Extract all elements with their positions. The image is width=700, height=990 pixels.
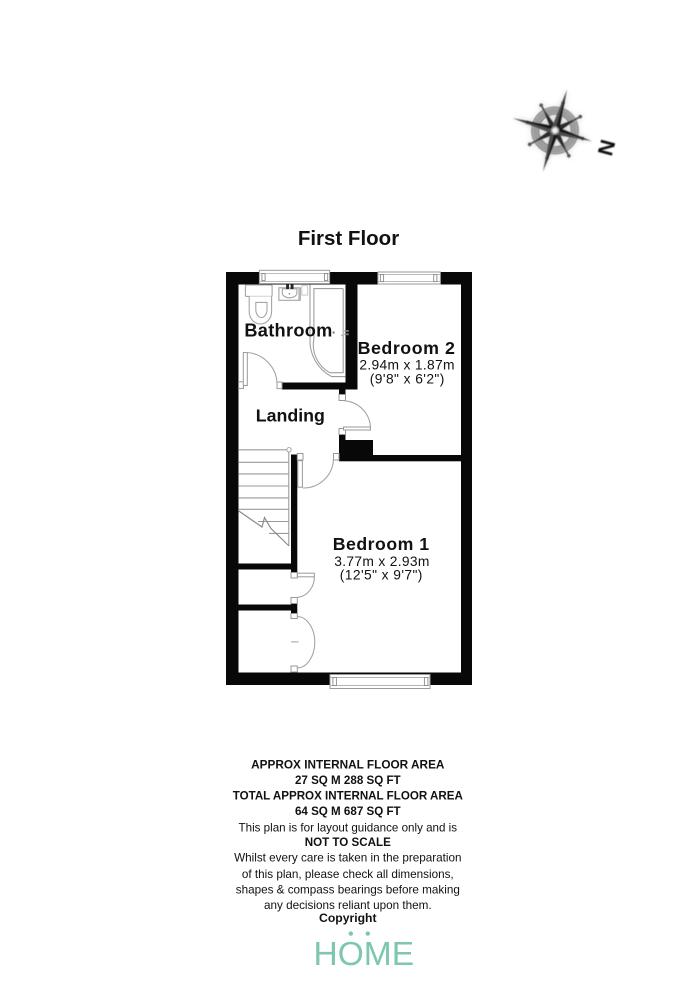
- svg-text:Copyright: Copyright: [319, 911, 377, 925]
- svg-text:NOT TO SCALE: NOT TO SCALE: [305, 836, 391, 849]
- svg-text:27 SQ M 288 SQ FT: 27 SQ M 288 SQ FT: [295, 774, 401, 787]
- svg-text:(12'5" x 9'7"): (12'5" x 9'7"): [340, 568, 423, 583]
- svg-text:Whilst every care is taken in: Whilst every care is taken in the prepar…: [234, 852, 461, 865]
- svg-text:First Floor: First Floor: [298, 227, 399, 250]
- svg-text:Bathroom: Bathroom: [244, 320, 332, 340]
- svg-text:of this plan, please check all: of this plan, please check all dimension…: [242, 868, 454, 881]
- svg-text:APPROX INTERNAL FLOOR AREA: APPROX INTERNAL FLOOR AREA: [251, 758, 445, 772]
- svg-text:(9'8" x 6'2"): (9'8" x 6'2"): [370, 372, 445, 387]
- svg-text:2.94m x 1.87m: 2.94m x 1.87m: [359, 358, 454, 373]
- svg-text:Bedroom 1: Bedroom 1: [333, 534, 430, 554]
- svg-text:64 SQ M 687 SQ FT: 64 SQ M 687 SQ FT: [295, 805, 401, 818]
- svg-text:This plan is for layout guidan: This plan is for layout guidance only an…: [239, 822, 458, 835]
- svg-text:Bedroom 2: Bedroom 2: [358, 338, 456, 358]
- svg-text:HOME: HOME: [314, 936, 415, 973]
- svg-text:Landing: Landing: [256, 406, 325, 426]
- svg-text:shapes & compass bearings befo: shapes & compass bearings before making: [236, 884, 460, 897]
- svg-text:N: N: [593, 137, 620, 158]
- svg-text:TOTAL APPROX INTERNAL FLOOR AR: TOTAL APPROX INTERNAL FLOOR AREA: [233, 790, 464, 803]
